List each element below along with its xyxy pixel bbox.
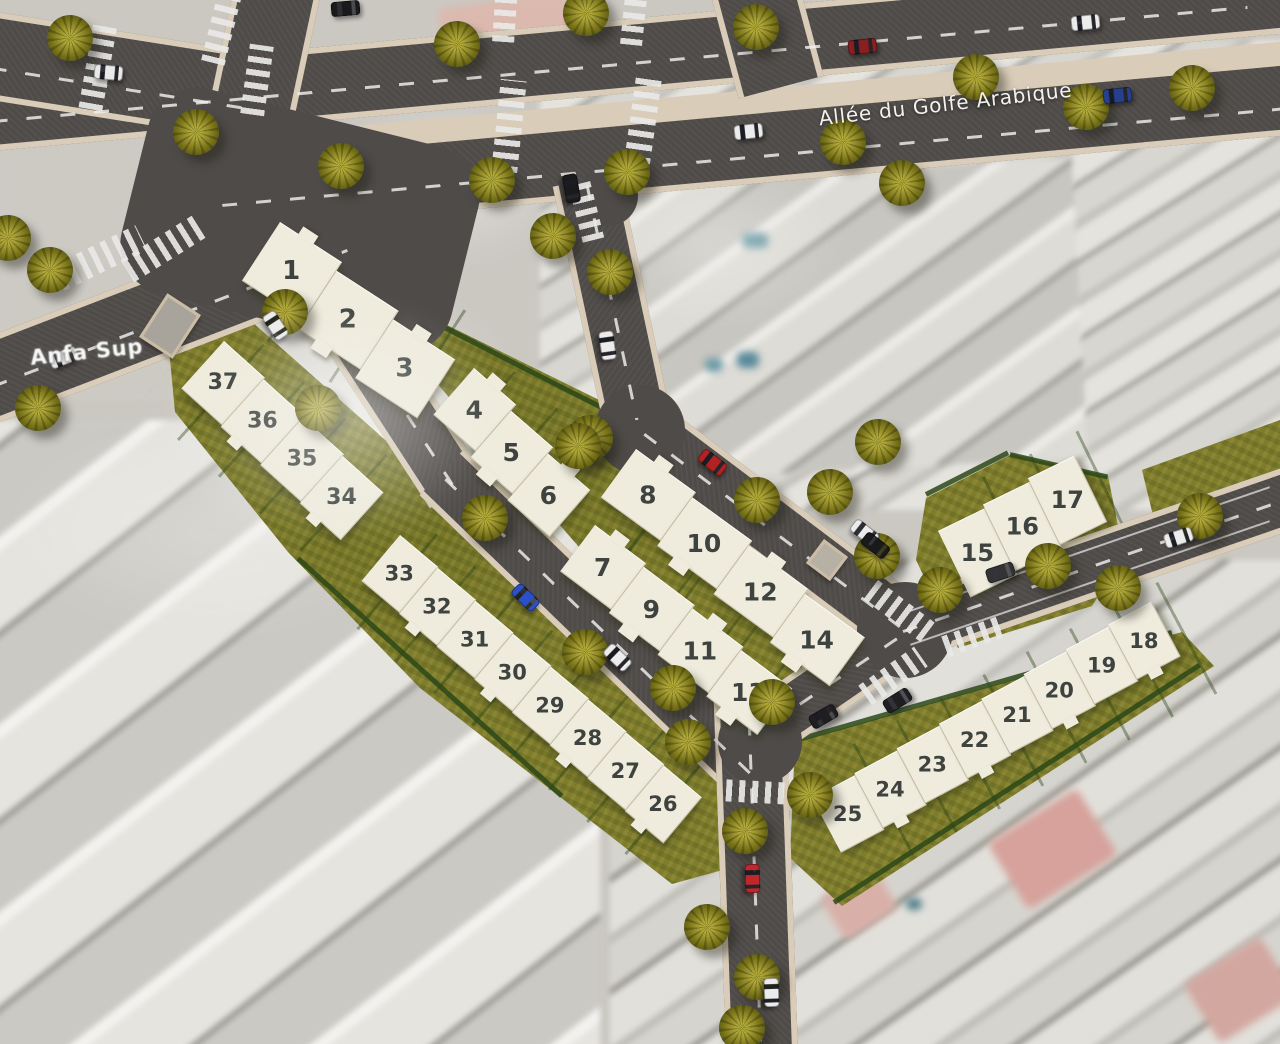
palm-tree-icon — [1025, 543, 1071, 589]
lot-number: 36 — [247, 410, 278, 432]
palm-tree-icon — [665, 719, 711, 765]
palm-tree-icon — [855, 419, 901, 465]
pool — [742, 233, 768, 248]
lot-number: 32 — [423, 596, 452, 617]
palm-tree-icon — [650, 665, 696, 711]
lot-number: 10 — [687, 531, 722, 556]
car-icon — [847, 38, 877, 56]
palm-tree-icon — [587, 249, 633, 295]
car-icon — [763, 978, 779, 1008]
lot-number: 19 — [1087, 655, 1116, 676]
pool — [906, 898, 922, 910]
lot-number: 27 — [611, 761, 640, 782]
palm-tree-icon — [734, 477, 780, 523]
lot-number: 8 — [639, 482, 656, 507]
car-icon — [1070, 14, 1100, 32]
lot-number: 9 — [643, 596, 660, 621]
palm-tree-icon — [173, 109, 219, 155]
palm-tree-icon — [47, 15, 93, 61]
palm-tree-icon — [555, 423, 601, 469]
lot-number: 25 — [833, 804, 862, 825]
lot-number: 2 — [339, 307, 357, 333]
palm-tree-icon — [318, 143, 364, 189]
lot-number: 24 — [875, 779, 904, 800]
palm-tree-icon — [562, 629, 608, 675]
lot-number: 26 — [648, 794, 677, 815]
site-plan-map: 1234568101214791113151617252423222120191… — [0, 0, 1280, 1044]
palm-tree-icon — [719, 1005, 765, 1044]
palm-tree-icon — [1095, 565, 1141, 611]
lot-number: 35 — [286, 448, 317, 470]
lot-number: 22 — [960, 729, 989, 750]
lot-number: 15 — [960, 541, 993, 565]
lot-number: 3 — [396, 356, 414, 382]
lot-number: 30 — [498, 662, 527, 683]
palm-tree-icon — [749, 679, 795, 725]
palm-tree-icon — [733, 4, 779, 50]
crosswalk — [492, 0, 518, 42]
lot-number: 17 — [1050, 488, 1083, 512]
car-icon — [330, 0, 360, 17]
palm-tree-icon — [295, 385, 341, 431]
lot-number: 37 — [207, 372, 238, 394]
lot-number: 29 — [535, 695, 564, 716]
palm-tree-icon — [807, 469, 853, 515]
pool — [705, 358, 723, 372]
lot-number: 14 — [800, 627, 835, 652]
lot-number: 20 — [1045, 680, 1074, 701]
palm-tree-icon — [879, 160, 925, 206]
palm-tree-icon — [917, 567, 963, 613]
car-icon — [1102, 87, 1132, 105]
palm-tree-icon — [604, 149, 650, 195]
lot-number: 16 — [1005, 515, 1038, 539]
lot-number: 21 — [1002, 705, 1031, 726]
car-icon — [93, 64, 123, 81]
palm-tree-icon — [722, 808, 768, 854]
palm-tree-icon — [1169, 65, 1215, 111]
lot-number: 33 — [385, 563, 414, 584]
lot-number: 11 — [683, 638, 718, 663]
lot-number: 12 — [743, 579, 778, 604]
car-icon — [744, 864, 760, 894]
lot-number: 1 — [283, 258, 301, 284]
pool — [737, 352, 759, 368]
lot-number: 28 — [573, 728, 602, 749]
lot-number: 23 — [918, 754, 947, 775]
palm-tree-icon — [462, 495, 508, 541]
crosswalk — [725, 779, 788, 804]
lot-number: 4 — [466, 397, 483, 422]
palm-tree-icon — [684, 904, 730, 950]
lot-number: 34 — [326, 487, 357, 509]
palm-tree-icon — [15, 385, 61, 431]
lot-number: 6 — [540, 482, 557, 507]
lot-number: 7 — [594, 555, 611, 580]
lot-number: 18 — [1129, 630, 1158, 651]
palm-tree-icon — [27, 247, 73, 293]
palm-tree-icon — [530, 213, 576, 259]
car-icon — [733, 123, 763, 141]
palm-tree-icon — [469, 157, 515, 203]
lot-number: 31 — [460, 629, 489, 650]
lot-number: 5 — [503, 440, 520, 465]
palm-tree-icon — [787, 772, 833, 818]
palm-tree-icon — [434, 21, 480, 67]
